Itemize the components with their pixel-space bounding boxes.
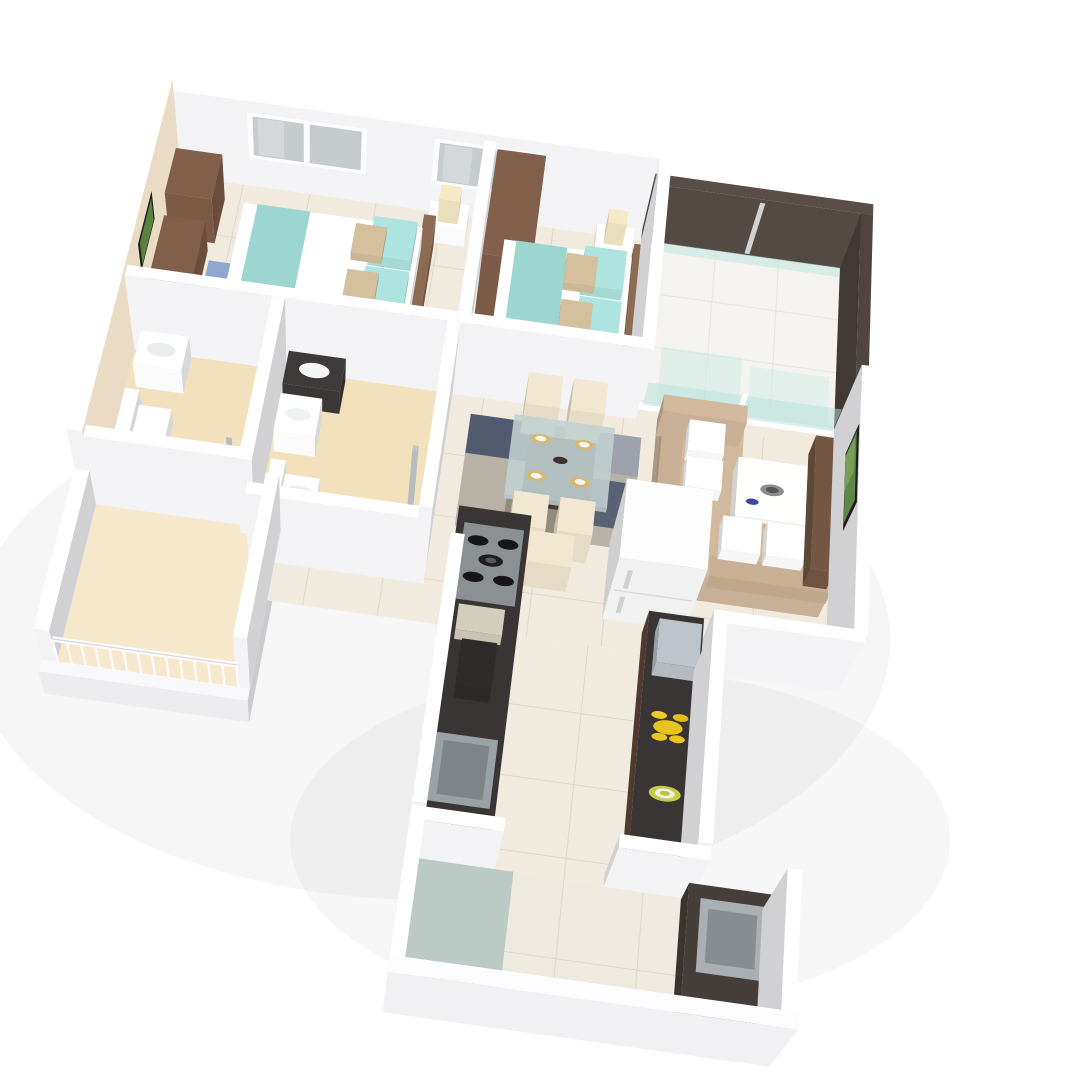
bedroom2-window-reflection <box>442 145 473 185</box>
kitchen-sink-basin <box>436 740 489 800</box>
sofa-south-pillow-1 <box>721 515 762 554</box>
washing-machine <box>401 858 514 975</box>
dining-chair-n2 <box>571 378 609 414</box>
kitchen-coffee-set <box>456 638 498 689</box>
bedroom1-window-reflection <box>258 118 285 158</box>
floor-plan-render <box>0 0 1080 1080</box>
bedroom1-lamp-n <box>437 199 460 224</box>
bedroom1-window-mullion <box>304 124 310 163</box>
bedroom1-lamp-n <box>439 184 462 202</box>
dining-chair-s2 <box>557 497 596 536</box>
floor-plan-scene <box>0 0 1080 1080</box>
sofa-south-pillow-2 <box>766 522 807 562</box>
bedroom2-pillow-tan-1 <box>564 253 598 287</box>
bedroom1-pillow-tan-1 <box>351 223 387 256</box>
dining-stool <box>526 530 575 568</box>
fridge <box>619 478 713 569</box>
bedroom2-lamp-n <box>608 209 628 225</box>
sofa-west-pillow-2 <box>685 456 724 491</box>
balcony-bl-railing-post <box>237 665 239 689</box>
utility-sink-basin <box>705 909 758 970</box>
dish-rack <box>656 618 702 668</box>
dining-chair-n1 <box>525 372 563 408</box>
bathroom2-shower-pole <box>412 445 419 451</box>
sofa-west-pillow-1 <box>688 419 726 455</box>
